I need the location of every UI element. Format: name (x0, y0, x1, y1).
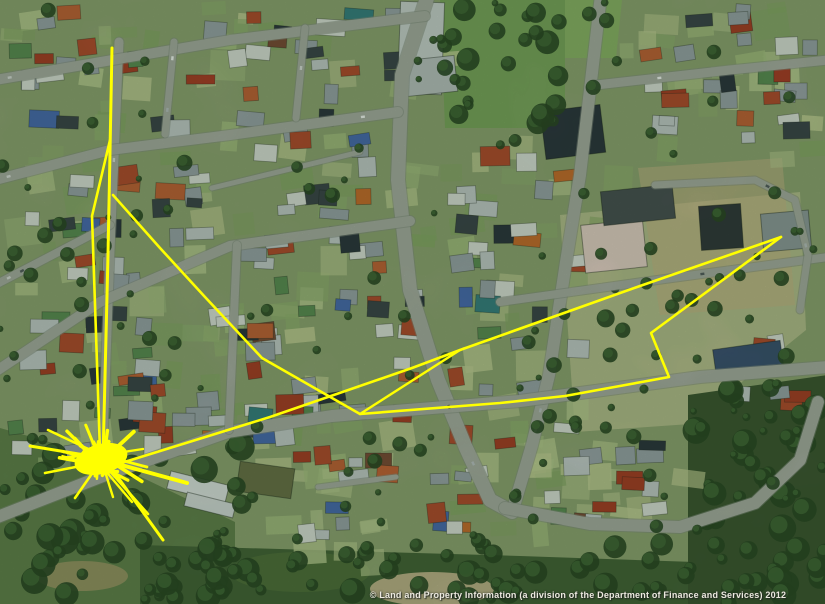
photo-grain-overlay (0, 0, 825, 604)
map-container: © Land and Property Information (a divis… (0, 0, 825, 604)
aerial-photo (0, 0, 825, 604)
